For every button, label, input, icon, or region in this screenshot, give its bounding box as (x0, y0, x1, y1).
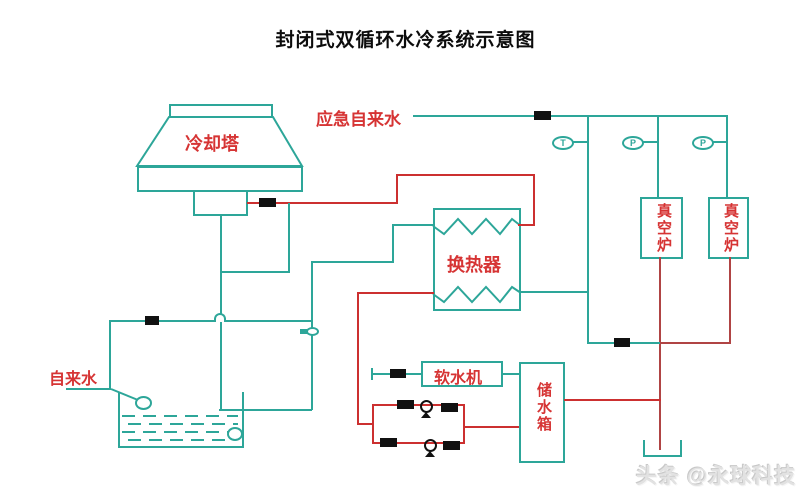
cooling-tower-outlet-box (193, 190, 248, 216)
valve-makeup (145, 316, 159, 325)
instrument-p1-letter: P (630, 138, 636, 148)
pipe-tower-branch-h (221, 271, 289, 273)
vacuum-furnace-1-label: 真空炉 (653, 203, 674, 254)
watermark: 头条 @永球科技 (636, 460, 796, 490)
instrument-p2-letter: P (700, 138, 706, 148)
emergency-water-label: 应急自来水 (316, 105, 401, 130)
pipe-tower-branch-v (288, 203, 290, 273)
pipe-pump-outlet (463, 426, 520, 428)
pipe-makeup-left-seg (110, 320, 214, 322)
float-ball-right-icon (227, 427, 243, 441)
basin-wall-right (242, 392, 244, 448)
pipe-hx-left-run (312, 261, 393, 263)
page-title: 封闭式双循环水冷系统示意图 (0, 25, 811, 52)
pump-icon-top (420, 400, 432, 418)
pipe-basin-surface (219, 409, 312, 411)
instrument-p2-gauge: P (692, 136, 714, 150)
pipe-emergency-manifold (413, 115, 728, 117)
pipe-hot-coil-stub (518, 224, 535, 226)
cooling-tower-label: 冷却塔 (185, 130, 239, 156)
valve-pump-top-in (397, 400, 414, 409)
pipe-furnace-drain-header (659, 342, 731, 344)
instrument-t-letter: T (560, 138, 566, 148)
pipe-furnace1-feed (657, 115, 659, 198)
pipe-pump-loop-right (463, 404, 465, 444)
basin-water-dashes (122, 431, 238, 433)
basin-bottom (118, 446, 244, 448)
pipe-furnace2-feed (726, 115, 728, 198)
pump-base-icon (425, 451, 435, 457)
pipe-crossover-hop (214, 313, 226, 322)
heat-exchanger-top-coil (433, 215, 521, 237)
storage-tank-label: 储水箱 (533, 382, 554, 433)
pipe-hx-left-feed (393, 224, 433, 226)
pipe-hx-left-drop (392, 224, 394, 263)
pipe-tank-outlet (564, 399, 661, 401)
pipe-hot-riser (396, 174, 398, 204)
pipe-pump-loop-left (372, 404, 374, 444)
valve-pump-bottom-out (443, 441, 460, 450)
float-ball-left-icon (135, 396, 152, 410)
drain-funnel-bottom (643, 455, 682, 457)
valve-emergency-manifold (534, 111, 551, 120)
pump-icon-bottom (424, 439, 436, 457)
valve-softener-inlet (390, 369, 406, 378)
valve-pump-top-out (441, 403, 458, 412)
instrument-t-gauge: T (552, 136, 574, 150)
pump-base-icon (421, 412, 431, 418)
tap-water-label: 自来水 (49, 365, 97, 389)
pipe-bypass-down (587, 115, 589, 344)
basin-water-dashes (128, 423, 238, 425)
basin-water-dashes (122, 415, 238, 417)
pipe-furnace1-drain (659, 257, 661, 450)
basin-wall-left (118, 392, 120, 448)
pipe-pump-riser (357, 292, 359, 425)
ball-valve-body (306, 327, 319, 336)
heat-exchanger-label: 换热器 (447, 251, 501, 277)
pipe-makeup-right-seg (226, 320, 312, 322)
instrument-t-connector (572, 141, 589, 143)
pipe-furnace2-drain (729, 257, 731, 344)
pipe-hx-bottom-red (358, 292, 434, 294)
pipe-hot-top-run (396, 174, 535, 176)
basin-water-dashes (128, 439, 232, 441)
diagram-canvas: 封闭式双循环水冷系统示意图 冷却塔 应急自来水 T P P 真空炉 真空炉 换热… (0, 0, 811, 500)
valve-pump-bottom-in (380, 438, 397, 447)
water-softener-label: 软水机 (434, 364, 482, 388)
cooling-tower-basin (137, 166, 303, 192)
instrument-p1-connector (642, 141, 659, 143)
vacuum-furnace-2-label: 真空炉 (720, 203, 741, 254)
pipe-hot-drop (533, 174, 535, 226)
heat-exchanger-bottom-coil (433, 283, 521, 305)
pipe-softener-to-tank (501, 373, 519, 375)
pipe-tapwater-riser (109, 320, 111, 390)
pipe-hx-cold-out (520, 291, 589, 293)
valve-bypass (614, 338, 630, 347)
valve-tower-hot-out (259, 198, 276, 207)
instrument-p1-gauge: P (622, 136, 644, 150)
